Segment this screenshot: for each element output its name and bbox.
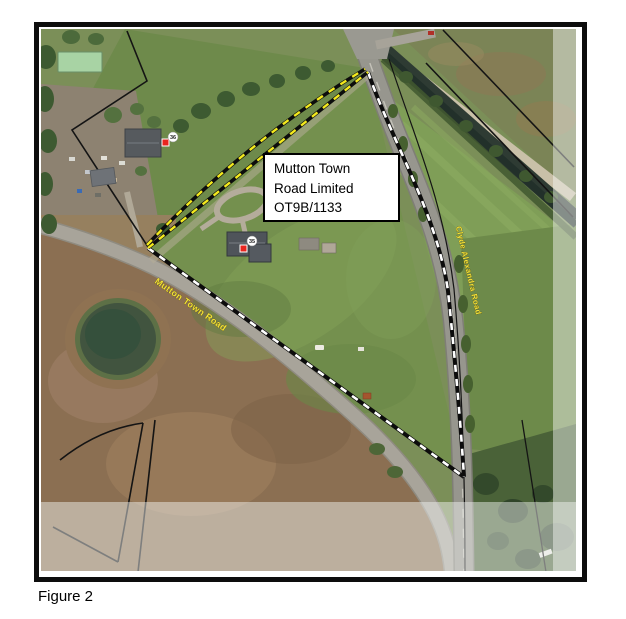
faded-overlay-bottom bbox=[41, 502, 576, 571]
parcel-label-line2: Road Limited bbox=[274, 179, 394, 199]
house-number-36: 36 bbox=[170, 135, 176, 141]
pond bbox=[65, 289, 171, 389]
parcel-label-box: Mutton Town Road Limited OT9B/1133 bbox=[263, 153, 400, 222]
parcel-label-line3: OT9B/1133 bbox=[274, 198, 394, 218]
figure-page: 36 35 Mutton Town Road Clyde Alexandra R… bbox=[0, 0, 626, 619]
figure-caption: Figure 2 bbox=[38, 588, 93, 605]
shed bbox=[322, 243, 336, 253]
aerial-photo: 36 35 Mutton Town Road Clyde Alexandra R… bbox=[41, 29, 576, 571]
shed bbox=[299, 238, 319, 250]
green-roof-shed bbox=[58, 52, 102, 72]
house-number-35: 35 bbox=[249, 239, 255, 245]
aerial-map: 36 35 Mutton Town Road Clyde Alexandra R… bbox=[41, 29, 576, 571]
figure-frame: 36 35 Mutton Town Road Clyde Alexandra R… bbox=[34, 22, 587, 582]
parcel-label-line1: Mutton Town bbox=[274, 159, 394, 179]
faded-overlay-right bbox=[553, 29, 576, 571]
